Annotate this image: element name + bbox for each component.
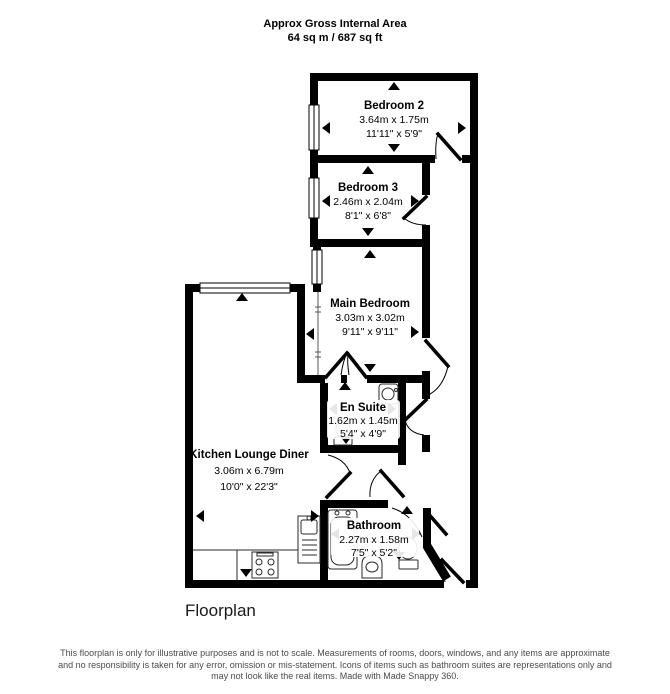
room-name: En Suite	[340, 402, 386, 414]
room-size-imperial: 10'0" x 22'3"	[220, 481, 278, 493]
room-name: Main Bedroom	[330, 298, 410, 310]
arrow-down-icon	[364, 364, 376, 372]
kitchen-window	[200, 283, 290, 293]
arrow-up-icon	[364, 250, 376, 258]
kitchen-label: Kitchen Lounge Diner 3.06m x 6.79m 10'0"…	[189, 449, 309, 493]
en-suite-label: En Suite 1.62m x 1.45m 5'4" x 4'9"	[327, 400, 400, 440]
room-size-imperial: 9'11" x 9'11"	[342, 326, 398, 338]
room-labels: Bedroom 2 3.64m x 1.75m 11'11" x 5'9" Be…	[189, 100, 429, 559]
kitchen-to-bedroom-door	[326, 353, 347, 377]
arrow-up-icon	[236, 293, 248, 301]
room-size-metric: 3.03m x 3.02m	[335, 312, 405, 324]
bedroom2-label: Bedroom 2 3.64m x 1.75m 11'11" x 5'9"	[359, 100, 429, 140]
arrow-down-icon	[362, 228, 374, 236]
arrow-up-icon	[388, 82, 400, 90]
arrow-right-icon	[411, 326, 419, 338]
main-bedroom-label: Main Bedroom 3.03m x 3.02m 9'11" x 9'11"	[330, 298, 410, 338]
room-size-imperial: 7'5" x 5'2"	[351, 547, 397, 559]
hob-icon	[252, 552, 278, 578]
arrow-up-icon	[362, 166, 374, 174]
room-size-imperial: 8'1" x 6'8"	[345, 210, 391, 222]
room-size-metric: 3.64m x 1.75m	[359, 114, 429, 126]
arrow-right-icon	[458, 122, 466, 134]
room-name: Bedroom 2	[364, 100, 424, 112]
room-size-metric: 2.46m x 2.04m	[333, 196, 403, 208]
kitchen-to-hall-door	[327, 455, 350, 497]
en-suite-door	[348, 354, 366, 377]
room-size-metric: 1.62m x 1.45m	[328, 415, 398, 427]
bathroom-sink-icon	[362, 556, 382, 578]
arrow-down-icon	[388, 144, 400, 152]
arrow-left-icon	[306, 328, 314, 340]
kitchen-sink-icon	[298, 516, 320, 563]
floorplan-caption: Floorplan	[185, 601, 256, 621]
room-size-metric: 3.06m x 6.79m	[214, 465, 284, 477]
floorplan-drawing: Bedroom 2 3.64m x 1.75m 11'11" x 5'9" Be…	[0, 0, 670, 694]
room-size-metric: 2.27m x 1.58m	[339, 534, 409, 546]
bedroom2-door	[436, 134, 460, 159]
floorplan-page: { "header": { "title": "Approx Gross Int…	[0, 0, 670, 694]
main-bedroom-window	[312, 250, 322, 284]
arrow-up-icon	[339, 382, 351, 390]
disclaimer: This floorplan is only for illustrative …	[25, 648, 645, 683]
arrow-left-icon	[196, 510, 204, 522]
bathroom-label: Bathroom 2.27m x 1.58m 7'5" x 5'2"	[331, 518, 419, 559]
arrow-left-icon	[322, 122, 330, 134]
arrow-up-icon	[401, 506, 413, 514]
disclaimer-line-3: may not look like the real items. Made w…	[25, 671, 645, 683]
bedroom3-label: Bedroom 3 2.46m x 2.04m 8'1" x 6'8"	[333, 182, 403, 222]
room-name: Bathroom	[347, 520, 401, 532]
room-name: Kitchen Lounge Diner	[189, 449, 309, 461]
room-name: Bedroom 3	[338, 182, 398, 194]
disclaimer-line-1: This floorplan is only for illustrative …	[25, 648, 645, 660]
hall-inner-door	[370, 471, 403, 497]
bedroom2-window	[309, 105, 319, 150]
arrow-down-icon	[240, 569, 252, 577]
windows	[200, 105, 322, 293]
room-size-imperial: 11'11" x 5'9"	[366, 128, 422, 140]
thin-partition	[315, 292, 321, 375]
room-size-imperial: 5'4" x 4'9"	[340, 428, 386, 440]
hall-to-corridor-door	[405, 400, 426, 435]
bedroom3-window	[309, 178, 319, 218]
disclaimer-line-2: and no responsibility is taken for any e…	[25, 660, 645, 672]
arrow-left-icon	[322, 195, 330, 207]
